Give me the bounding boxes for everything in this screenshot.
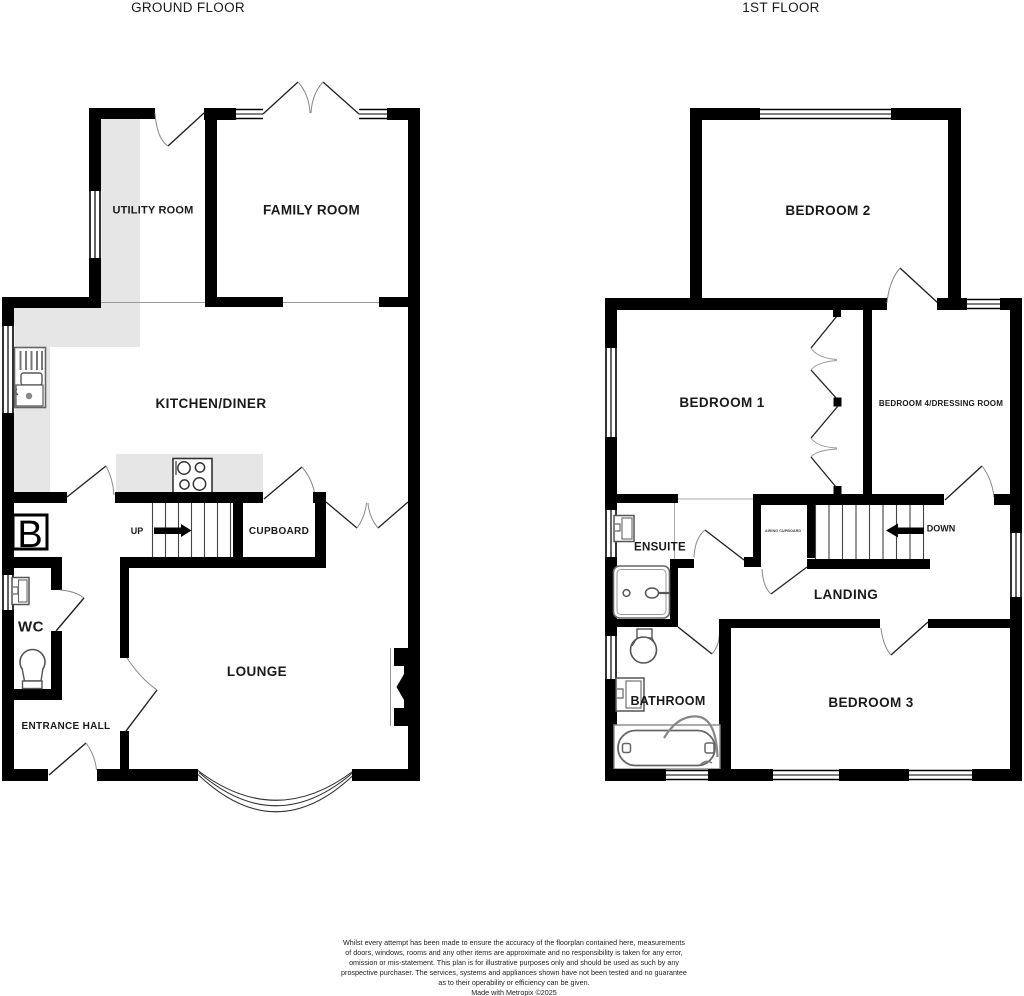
svg-text:UTILITY ROOM: UTILITY ROOM [112, 205, 193, 217]
svg-text:DOWN: DOWN [927, 524, 956, 534]
svg-text:ENTRANCE HALL: ENTRANCE HALL [22, 721, 111, 732]
svg-text:BEDROOM 1: BEDROOM 1 [679, 395, 764, 410]
svg-text:CUPBOARD: CUPBOARD [249, 526, 309, 537]
svg-text:of doors, windows, rooms and a: of doors, windows, rooms and any other i… [345, 948, 683, 957]
svg-text:BEDROOM 3: BEDROOM 3 [828, 695, 913, 710]
svg-text:KITCHEN/DINER: KITCHEN/DINER [156, 396, 267, 411]
svg-text:B: B [17, 514, 42, 556]
svg-text:LOUNGE: LOUNGE [227, 664, 287, 679]
svg-text:ENSUITE: ENSUITE [634, 542, 686, 554]
svg-text:BEDROOM 2: BEDROOM 2 [785, 203, 870, 218]
svg-text:prospective purchaser. The ser: prospective purchaser. The services, sys… [341, 968, 687, 977]
svg-text:1ST FLOOR: 1ST FLOOR [742, 0, 819, 15]
svg-text:WC: WC [18, 619, 44, 636]
svg-text:AIRING CUPBOARD: AIRING CUPBOARD [765, 529, 802, 533]
svg-text:omission or mis-statement. Thi: omission or mis-statement. This plan is … [349, 958, 679, 967]
svg-text:BATHROOM: BATHROOM [630, 694, 705, 708]
svg-text:as to their operability or eff: as to their operability or efficiency ca… [438, 978, 589, 987]
svg-text:BEDROOM 4/DRESSING ROOM: BEDROOM 4/DRESSING ROOM [879, 399, 1003, 408]
svg-text:LANDING: LANDING [814, 587, 878, 602]
svg-text:GROUND FLOOR: GROUND FLOOR [131, 0, 245, 15]
svg-text:FAMILY ROOM: FAMILY ROOM [263, 203, 360, 218]
svg-text:UP: UP [131, 526, 144, 536]
svg-text:Whilst every attempt has been: Whilst every attempt has been made to en… [343, 938, 685, 947]
svg-text:Made with Metropix ©2025: Made with Metropix ©2025 [471, 988, 557, 996]
